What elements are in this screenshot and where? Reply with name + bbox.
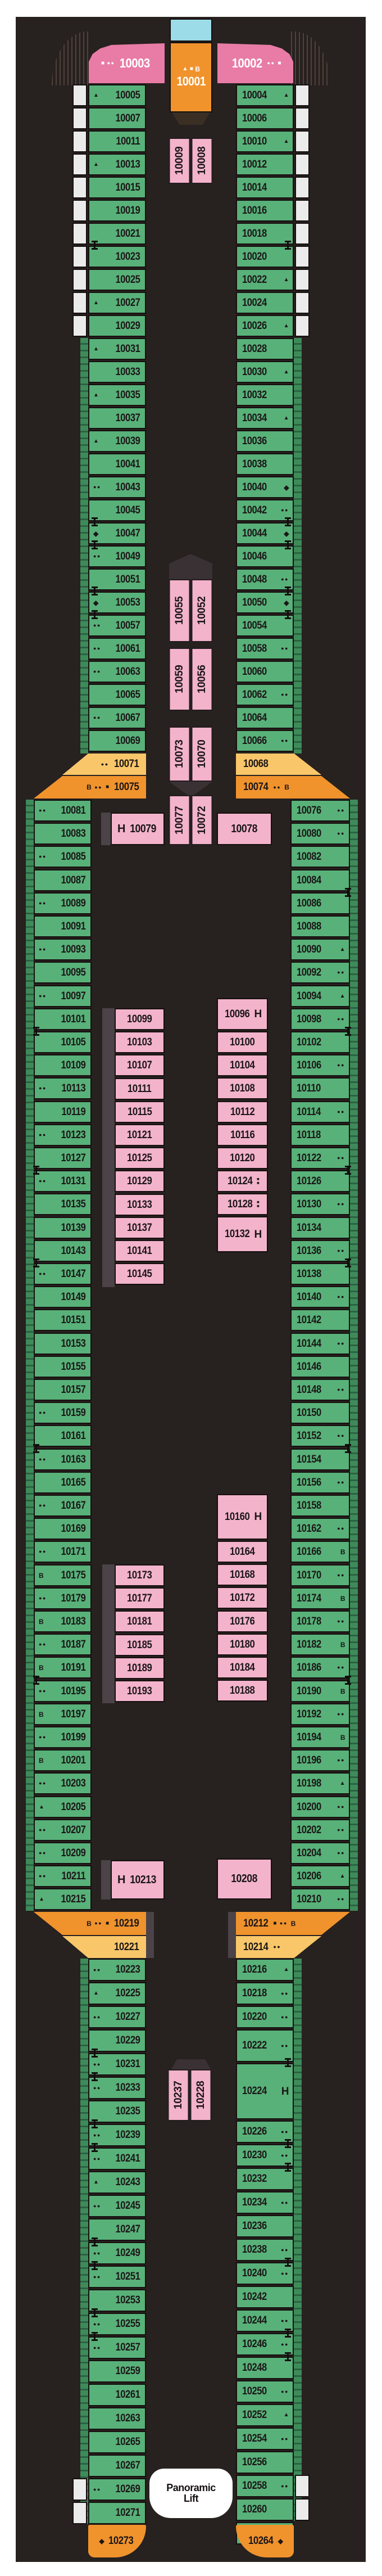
cabin-10170[interactable]: 10170●● (290, 1564, 350, 1586)
cabin-10169[interactable]: 10169 (34, 1518, 92, 1540)
cabin-number: 10096 (225, 1008, 249, 1021)
cabin-number: 10237 (172, 2081, 185, 2109)
cabin-10265[interactable]: 10265 (88, 2431, 146, 2453)
cabin-number: 10231 (115, 2058, 140, 2070)
cabin-10032[interactable]: 10032 (236, 384, 294, 406)
cabin-10189[interactable]: 10189 (115, 1657, 165, 1679)
cabin-10065[interactable]: 10065 (88, 684, 146, 706)
connector-icon (285, 610, 291, 619)
cabin-10148[interactable]: 10148●● (290, 1379, 350, 1401)
cabin-10180[interactable]: 10180 (217, 1634, 268, 1655)
cabin-10102[interactable]: 10102 (290, 1031, 350, 1053)
cabin-10052[interactable]: 10052 (192, 579, 213, 642)
cabin-10088[interactable]: 10088 (290, 915, 350, 937)
cabin-number: 10191 (61, 1662, 85, 1674)
cabin-number: 10001 (176, 74, 206, 89)
cabin-10001[interactable]: ▲■B10001 (170, 42, 212, 112)
dots-icon: ●● (93, 2345, 101, 2351)
cabin-number: 10221 (114, 1941, 139, 1954)
cabin-10092[interactable]: 10092●● (290, 962, 350, 984)
cabin-10120[interactable]: 10120 (217, 1147, 268, 1169)
cabin-number: 10048 (242, 574, 267, 586)
dots-icon: ●● (281, 646, 289, 651)
cabin-10098[interactable]: 10098●● (290, 1008, 350, 1030)
triangle-icon: ▲ (93, 93, 98, 98)
cabin-10165[interactable]: 10165 (34, 1472, 92, 1494)
cabin-10058[interactable]: 10058●● (236, 638, 294, 660)
dots-icon: ●● (337, 1897, 345, 1902)
cabin-10041[interactable]: 10041 (88, 453, 146, 475)
cabin-10139[interactable]: 10139 (34, 1217, 92, 1239)
cabin-10122[interactable]: 10122●● (290, 1147, 350, 1169)
cabin-number: 10094 (297, 990, 321, 1003)
cabin-10194[interactable]: 10194B (290, 1726, 350, 1748)
cabin-10064[interactable]: 10064 (236, 707, 294, 729)
cabin-10094[interactable]: 10094▲ (290, 985, 350, 1007)
cabin-10014[interactable]: 10014 (236, 177, 294, 198)
cabin-10081[interactable]: ●●10081 (34, 800, 92, 822)
cabin-number: 10049 (115, 551, 140, 563)
cabin-10099[interactable]: 10099 (115, 1008, 165, 1030)
cabin-10237[interactable]: 10237 (168, 2069, 189, 2121)
cabin-10154[interactable]: 10154 (290, 1449, 350, 1470)
cabin-10125[interactable]: 10125 (115, 1147, 165, 1169)
cabin-10213[interactable]: H10213 (111, 1860, 165, 1900)
cabin-10007[interactable]: 10007 (88, 107, 146, 129)
cabin-10224[interactable]: 10224H (236, 2063, 294, 2119)
cabin-10118[interactable]: 10118 (290, 1124, 350, 1146)
cabin-number: 10044 (242, 527, 267, 540)
cabin-10166[interactable]: 10166B (290, 1541, 350, 1563)
cabin-10263[interactable]: 10263 (88, 2407, 146, 2430)
cabin-10011[interactable]: 10011 (88, 130, 146, 152)
dots-icon: ●● (281, 2200, 289, 2205)
cabin-10145[interactable]: 10145 (115, 1263, 165, 1285)
dots-icon: ●● (281, 2389, 289, 2394)
cabin-10228[interactable]: 10228 (190, 2069, 212, 2121)
cabin-10002[interactable]: 10002●●■ (217, 43, 293, 83)
cabin-10172[interactable]: 10172 (217, 1587, 268, 1609)
cabin-10164[interactable]: 10164 (217, 1541, 268, 1563)
cabin-10199[interactable]: ●●10199 (34, 1726, 92, 1748)
cabin-10070[interactable]: 10070 (192, 727, 213, 782)
cabin-10190[interactable]: 10190B (290, 1680, 350, 1702)
cabin-number: 10162 (297, 1523, 321, 1535)
cabin-10025[interactable]: 10025 (88, 269, 146, 291)
cabin-10195[interactable]: ●●10195 (34, 1680, 92, 1702)
cabin-10022[interactable]: 10022▲ (236, 269, 294, 291)
cabin-10181[interactable]: 10181 (115, 1610, 165, 1632)
cabin-10207[interactable]: ●●10207 (34, 1819, 92, 1841)
cabin-10186[interactable]: 10186●● (290, 1657, 350, 1679)
cabin-10096[interactable]: 10096H (217, 998, 268, 1030)
cabin-10026[interactable]: 10026▲ (236, 315, 294, 337)
dots-icon: ●● (39, 1596, 47, 1601)
suite-icons: ▲■B (171, 66, 211, 73)
cabin-10179[interactable]: ●●10179 (34, 1587, 92, 1609)
cabin-10220[interactable]: 10220●● (236, 2006, 294, 2028)
cabin-10127[interactable]: 10127 (34, 1147, 92, 1169)
cabin-10027[interactable]: ▲10027 (88, 292, 146, 314)
cabin-10009[interactable]: 10009 (169, 138, 190, 184)
cabin-10271[interactable]: 10271 (88, 2502, 146, 2524)
cabin-10242[interactable]: 10242 (236, 2286, 294, 2308)
cabin-10082[interactable]: 10082 (290, 846, 350, 868)
cabin-number: 10208 (231, 1873, 258, 1885)
balcony-block (295, 154, 310, 175)
balcony-block (295, 223, 310, 245)
cabin-10067[interactable]: ●●10067 (88, 707, 146, 729)
cabin-number: 10247 (115, 2223, 140, 2236)
cabin-10112[interactable]: 10112 (217, 1101, 268, 1123)
cabin-10084[interactable]: 10084 (290, 869, 350, 891)
connector-icon (92, 2049, 98, 2058)
cabin-10250[interactable]: 10250●● (236, 2380, 294, 2403)
connector-icon (345, 1444, 351, 1453)
dots-icon: ●● (337, 1017, 345, 1022)
dots-icon: ●● (93, 554, 101, 559)
cabin-10066[interactable]: 10066●● (236, 730, 294, 752)
cabin-10039[interactable]: ▲10039 (88, 430, 146, 452)
cabin-10061[interactable]: ●●10061 (88, 638, 146, 660)
cabin-10202[interactable]: 10202●● (290, 1819, 350, 1841)
cabin-10215[interactable]: ▲10215 (34, 1888, 92, 1910)
cabin-10137[interactable]: 10137 (115, 1217, 165, 1239)
cabin-10259[interactable]: 10259 (88, 2360, 146, 2383)
cabin-10198[interactable]: 10198▲ (290, 1772, 350, 1794)
cabin-10157[interactable]: 10157 (34, 1379, 92, 1401)
cabin-10010[interactable]: 10010▲ (236, 130, 294, 152)
cabin-10105[interactable]: 10105 (34, 1031, 92, 1053)
cabin-10203[interactable]: ●●10203 (34, 1772, 92, 1794)
cabin-10216[interactable]: 10216▲ (236, 1959, 294, 1981)
cabin-10012[interactable]: 10012 (236, 154, 294, 175)
dots-icon: ●● (337, 1665, 345, 1670)
dots-icon: ●● (93, 2487, 101, 2492)
cabin-10191[interactable]: B10191 (34, 1657, 92, 1679)
diamond-icon: ◆ (284, 530, 289, 537)
dots-icon: ●● (93, 2251, 101, 2256)
cabin-number: 10172 (230, 1592, 254, 1604)
cabin-10123[interactable]: ●●10123 (34, 1124, 92, 1146)
cabin-number: 10144 (297, 1338, 321, 1350)
cabin-10167[interactable]: ●●10167 (34, 1495, 92, 1517)
cabin-number: 10116 (230, 1129, 254, 1142)
cabin-10140[interactable]: 10140●● (290, 1286, 350, 1308)
cabin-10208[interactable]: 10208 (217, 1858, 272, 1900)
cabin-10171[interactable]: ●●10171 (34, 1541, 92, 1563)
cabin-number: 10124 (228, 1175, 252, 1188)
cabin-number: 10265 (115, 2436, 140, 2448)
dots-icon: ●● (39, 1735, 47, 1740)
cabin-10005[interactable]: ▲10005 (88, 84, 146, 106)
cabin-10095[interactable]: 10095 (34, 962, 92, 984)
cabin-10151[interactable]: 10151 (34, 1309, 92, 1331)
cabin-10040[interactable]: 10040◆ (236, 476, 294, 498)
triangle-icon: ▲ (284, 93, 289, 98)
cabin-10019[interactable]: 10019 (88, 200, 146, 222)
cabin-10236[interactable]: 10236 (236, 2215, 294, 2237)
cabin-number: 10070 (195, 740, 208, 768)
cabin-10182[interactable]: 10182B (290, 1634, 350, 1655)
cabin-10063[interactable]: ●●10063 (88, 661, 146, 683)
cabin-10091[interactable]: 10091 (34, 915, 92, 937)
cabin-10109[interactable]: 10109 (34, 1054, 92, 1076)
cabin-number: 10085 (61, 851, 85, 863)
cabin-10078[interactable]: 10078 (217, 813, 272, 845)
cabin-10146[interactable]: 10146 (290, 1356, 350, 1378)
cabin-10153[interactable]: 10153 (34, 1333, 92, 1355)
cabin-10184[interactable]: 10184 (217, 1657, 268, 1679)
dots-icon: ●● (93, 715, 101, 720)
cabin-10103[interactable]: 10103 (115, 1031, 165, 1053)
cabin-number: 10071 (114, 758, 139, 770)
dots-icon: ●● (337, 1828, 345, 1833)
cabin-10083[interactable]: 10083 (34, 823, 92, 845)
cabin-10147[interactable]: ●●10147 (34, 1263, 92, 1285)
cabin-10086[interactable]: 10086 (290, 892, 350, 914)
cabin-10090[interactable]: 10090▲ (290, 939, 350, 960)
cabin-10132[interactable]: 10132H (217, 1216, 268, 1252)
cabin-10205[interactable]: ▲10205 (34, 1796, 92, 1818)
dots-icon: ●● (337, 1758, 345, 1763)
cabin-10143[interactable]: 10143 (34, 1240, 92, 1262)
triangle-icon: ▲ (93, 2180, 98, 2185)
cabin-10016[interactable]: 10016 (236, 200, 294, 222)
connector-icon (92, 517, 98, 526)
cabin-10043[interactable]: ●●10043 (88, 476, 146, 498)
cabin-10197[interactable]: B10197 (34, 1703, 92, 1725)
shadow-strip (228, 1912, 236, 1958)
cabin-10131[interactable]: ●●10131 (34, 1170, 92, 1192)
cabin-10060[interactable]: 10060 (236, 661, 294, 683)
cabin-10158[interactable]: 10158 (290, 1495, 350, 1517)
cabin-10159[interactable]: ●●10159 (34, 1402, 92, 1424)
cabin-10110[interactable]: 10110 (290, 1077, 350, 1099)
cabin-number: 10170 (297, 1569, 321, 1582)
cabin-10024[interactable]: 10024 (236, 292, 294, 314)
cabin-10097[interactable]: ●●10097 (34, 985, 92, 1007)
cabin-10160[interactable]: 10160H (217, 1494, 268, 1540)
cabin-10193[interactable]: 10193 (115, 1680, 165, 1702)
cabin-10030[interactable]: 10030▲ (236, 361, 294, 383)
cabin-10130[interactable]: 10130●● (290, 1193, 350, 1215)
cabin-10037[interactable]: 10037 (88, 407, 146, 429)
cabin-10093[interactable]: ●●10093 (34, 939, 92, 960)
cabin-10258[interactable]: 10258●● (236, 2475, 294, 2497)
cabin-10144[interactable]: 10144●● (290, 1333, 350, 1355)
cabin-10209[interactable]: ●●10209 (34, 1842, 92, 1864)
cabin-10073[interactable]: 10073 (169, 727, 190, 782)
cabin-10119[interactable]: 10119 (34, 1101, 92, 1123)
cabin-10260[interactable]: 10260 (236, 2498, 294, 2521)
cabin-10079[interactable]: H10079 (111, 813, 165, 845)
cabin-number: 10119 (61, 1106, 85, 1118)
cabin-10113[interactable]: ●●10113 (34, 1077, 92, 1099)
cabin-10101[interactable]: 10101 (34, 1008, 92, 1030)
cabin-10104[interactable]: 10104 (217, 1054, 268, 1076)
cabin-10069[interactable]: 10069 (88, 730, 146, 752)
cabin-10077[interactable]: 10077 (169, 795, 190, 845)
cabin-10100[interactable]: 10100 (217, 1031, 268, 1053)
cabin-10038[interactable]: 10038 (236, 453, 294, 475)
cabin-10076[interactable]: 10076●● (290, 800, 350, 822)
cabin-10121[interactable]: 10121 (115, 1124, 165, 1146)
cabin-number: 10146 (297, 1361, 321, 1373)
cabin-10177[interactable]: 10177 (115, 1587, 165, 1609)
cabin-10185[interactable]: 10185 (115, 1634, 165, 1656)
cabin-number: 10220 (242, 2011, 267, 2023)
cabin-10222[interactable]: 10222●● (236, 2029, 294, 2062)
triangle-icon: ▲ (93, 300, 98, 306)
cabin-10150[interactable]: 10150 (290, 1402, 350, 1424)
cabin-10192[interactable]: 10192●● (290, 1703, 350, 1725)
cabin-number: 10246 (242, 2338, 267, 2351)
cabin-number: 10036 (242, 435, 267, 448)
cabin-10055[interactable]: 10055 (169, 579, 190, 642)
cabin-10106[interactable]: 10106●● (290, 1054, 350, 1076)
cabin-10163[interactable]: ●●10163 (34, 1449, 92, 1470)
cabin-10267[interactable]: 10267 (88, 2455, 146, 2477)
cabin-10254[interactable]: 10254●● (236, 2428, 294, 2450)
cabin-10111[interactable]: 10111 (115, 1078, 165, 1100)
cabin-number: 10273 (108, 2535, 133, 2547)
cabin-10188[interactable]: 10188 (217, 1680, 268, 1702)
cabin-10116[interactable]: 10116 (217, 1124, 268, 1146)
cabin-number: 10053 (115, 597, 140, 609)
cabin-number: 10055 (174, 597, 186, 625)
dots-icon: ●● (337, 1573, 345, 1578)
panoramic-lift: Panoramic Lift (149, 2469, 233, 2518)
cabin-number: 10180 (230, 1639, 254, 1651)
cabin-10243[interactable]: ▲10243 (88, 2171, 146, 2194)
dots-icon: ●● (39, 901, 47, 906)
cabin-10201[interactable]: B10201 (34, 1749, 92, 1771)
cabin-10204[interactable]: 10204●● (290, 1842, 350, 1864)
cabin-10135[interactable]: 10135 (34, 1193, 92, 1215)
cabin-10004[interactable]: 10004▲ (236, 84, 294, 106)
cabin-10080[interactable]: 10080●● (290, 823, 350, 845)
cabin-10031[interactable]: ▲10031 (88, 338, 146, 360)
cabin-10008[interactable]: 10008 (192, 138, 213, 184)
cabin-10138[interactable]: 10138 (290, 1263, 350, 1285)
cabin-10223[interactable]: ●●10223 (88, 1959, 146, 1981)
cabin-10036[interactable]: 10036 (236, 430, 294, 452)
cabin-10269[interactable]: ●●10269 (88, 2478, 146, 2501)
cabin-number: 10098 (297, 1013, 321, 1026)
cabin-10196[interactable]: 10196●● (290, 1749, 350, 1771)
cabin-10128[interactable]: 10128■■ (217, 1193, 268, 1215)
cabin-10155[interactable]: 10155 (34, 1356, 92, 1378)
cabin-10029[interactable]: 10029 (88, 315, 146, 337)
cabin-10176[interactable]: 10176 (217, 1610, 268, 1632)
cabin-10085[interactable]: ●●10085 (34, 846, 92, 868)
cabin-10013[interactable]: ▲10013 (88, 154, 146, 175)
cabin-number: 10130 (297, 1198, 321, 1211)
cabin-10034[interactable]: 10034▲ (236, 407, 294, 429)
cabin-10115[interactable]: 10115 (115, 1101, 165, 1123)
cabin-10174[interactable]: 10174B (290, 1587, 350, 1609)
cabin-10211[interactable]: ●●10211 (34, 1865, 92, 1887)
cabin-10072[interactable]: 10072 (192, 795, 213, 845)
cabin-10114[interactable]: 10114●● (290, 1101, 350, 1123)
dots-icon: ●● (337, 1619, 345, 1624)
cabin-number: 10212 (243, 1918, 268, 1930)
connector-icon (285, 2329, 291, 2338)
cabin-number: 10134 (297, 1222, 321, 1234)
cabin-10225[interactable]: ▲10225 (88, 1982, 146, 2005)
balcony-block (295, 107, 310, 129)
cabin-10173[interactable]: 10173 (115, 1564, 165, 1586)
cabin-10087[interactable]: 10087 (34, 869, 92, 891)
cabin-10003[interactable]: ■●●10003 (89, 43, 165, 83)
cabin-10261[interactable]: 10261 (88, 2384, 146, 2406)
square-icon: ■ (278, 61, 281, 66)
cabin-number: 10004 (242, 89, 267, 102)
cabin-10161[interactable]: 10161 (34, 1425, 92, 1447)
cabin-10234[interactable]: 10234●● (236, 2191, 294, 2214)
cabin-10210[interactable]: 10210●● (290, 1888, 350, 1910)
cabin-10252[interactable]: 10252▲ (236, 2404, 294, 2426)
cabin-10133[interactable]: 10133 (115, 1194, 165, 1216)
cabin-10141[interactable]: 10141 (115, 1240, 165, 1262)
cabin-number: 10168 (230, 1569, 254, 1581)
cabin-10178[interactable]: 10178●● (290, 1610, 350, 1632)
cabin-10149[interactable]: 10149 (34, 1286, 92, 1308)
cabin-number: 10081 (61, 805, 85, 817)
cabin-number: 10035 (115, 389, 140, 401)
cabin-10245[interactable]: ●●10245 (88, 2195, 146, 2217)
cabin-10162[interactable]: 10162●● (290, 1518, 350, 1540)
cabin-10206[interactable]: 10206▲ (290, 1865, 350, 1887)
cabin-10028[interactable]: 10028 (236, 338, 294, 360)
cabin-10033[interactable]: 10033 (88, 361, 146, 383)
cabin-10006[interactable]: 10006 (236, 107, 294, 129)
dots-icon: ●● (93, 1968, 101, 1973)
cabin-10187[interactable]: ●●10187 (34, 1634, 92, 1655)
cabin-number: 10151 (61, 1314, 85, 1327)
cabin-10218[interactable]: 10218●● (236, 1982, 294, 2005)
cabin-10124[interactable]: 10124■■ (217, 1170, 268, 1192)
cabin-10035[interactable]: ▲10035 (88, 384, 146, 406)
cabin-10108[interactable]: 10108 (217, 1077, 268, 1099)
cabin-10156[interactable]: 10156●● (290, 1472, 350, 1494)
diamond-icon: ◆ (284, 484, 289, 491)
cabin-10126[interactable]: 10126 (290, 1170, 350, 1192)
cabin-10015[interactable]: 10015 (88, 177, 146, 198)
dots-icon: ●● (93, 2322, 101, 2327)
cabin-10183[interactable]: B10183 (34, 1610, 92, 1632)
cabin-10227[interactable]: ●●10227 (88, 2006, 146, 2028)
cabin-10062[interactable]: 10062●● (236, 684, 294, 706)
cabin-number: 10104 (230, 1059, 254, 1072)
h-icon: H (254, 1229, 262, 1240)
cabin-10136[interactable]: 10136●● (290, 1240, 350, 1262)
cabin-10059[interactable]: 10059 (169, 648, 190, 711)
cabin-number: 10076 (297, 805, 321, 817)
cabin-10134[interactable]: 10134 (290, 1217, 350, 1239)
cabin-10107[interactable]: 10107 (115, 1054, 165, 1076)
cabin-10168[interactable]: 10168 (217, 1564, 268, 1586)
cabin-10200[interactable]: 10200●● (290, 1796, 350, 1818)
cabin-10089[interactable]: ●●10089 (34, 892, 92, 914)
cabin-10129[interactable]: 10129 (115, 1170, 165, 1192)
cabin-10152[interactable]: 10152●● (290, 1425, 350, 1447)
cabin-10175[interactable]: B10175 (34, 1564, 92, 1586)
cabin-10256[interactable]: 10256 (236, 2451, 294, 2474)
cabin-10142[interactable]: 10142 (290, 1309, 350, 1331)
cabin-10056[interactable]: 10056 (192, 648, 213, 711)
